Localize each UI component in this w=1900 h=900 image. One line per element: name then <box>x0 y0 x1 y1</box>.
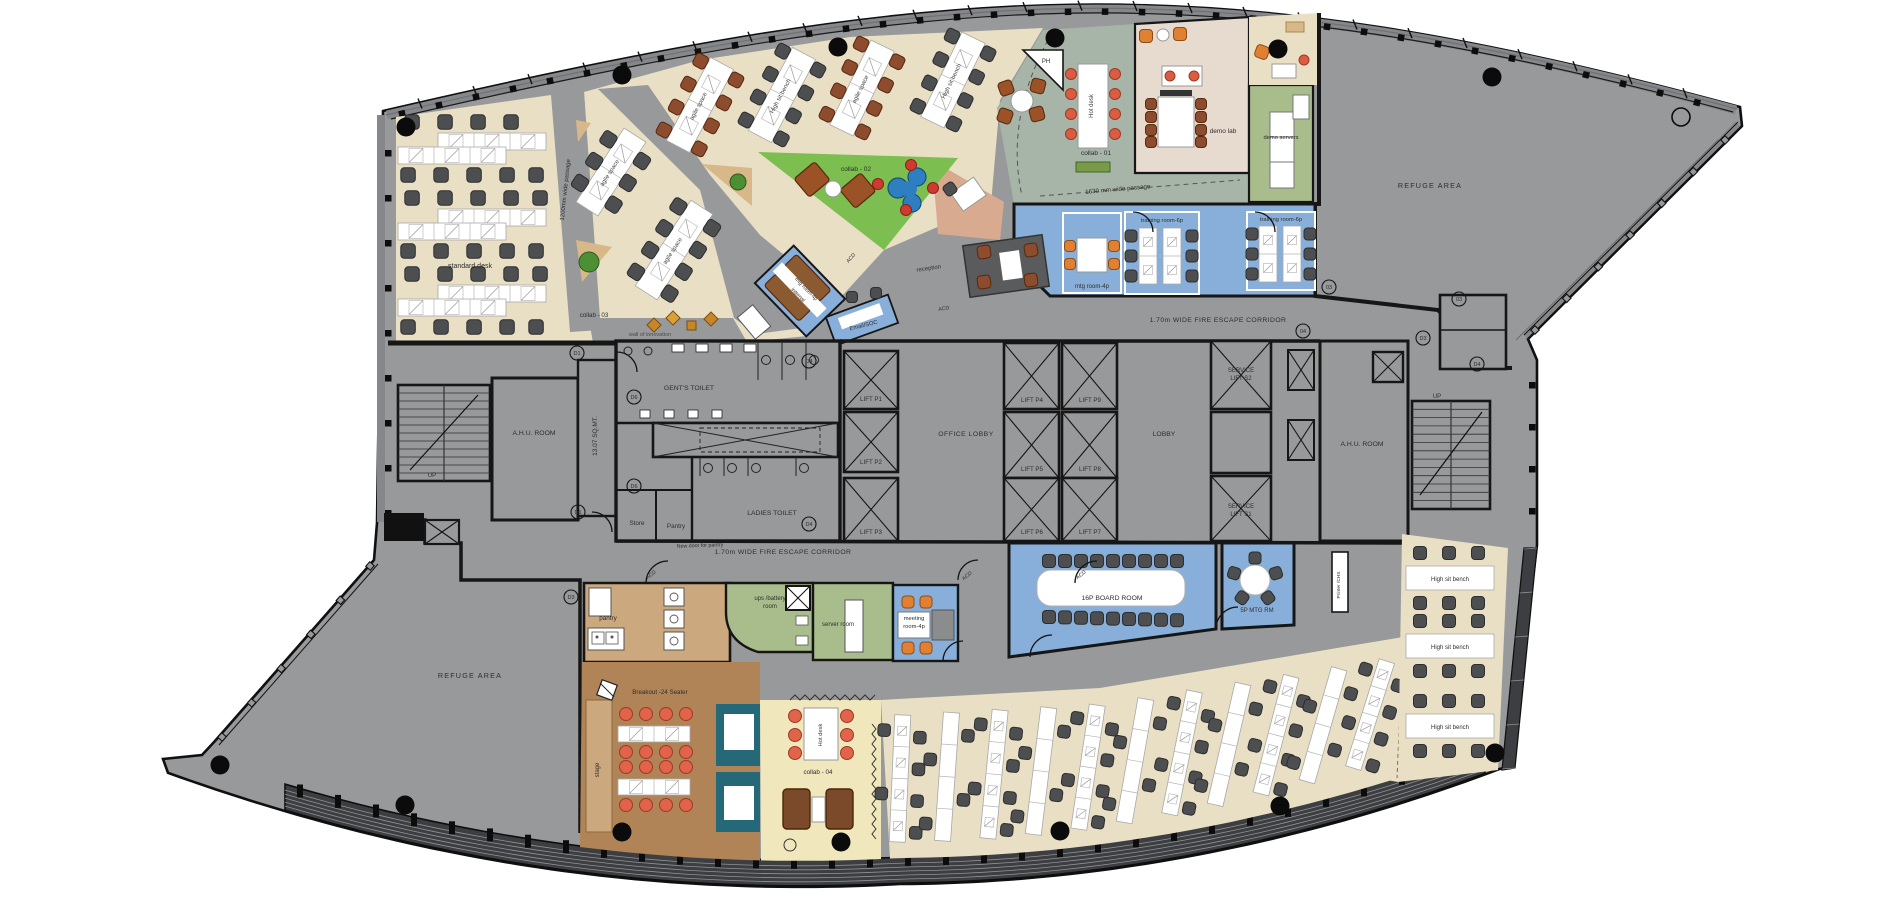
svg-text:mtg room-4p: mtg room-4p <box>1075 284 1110 290</box>
svg-text:OFFICE LOBBY: OFFICE LOBBY <box>938 431 993 438</box>
svg-text:5P MTG RM: 5P MTG RM <box>1240 608 1273 614</box>
svg-text:LIFT P4: LIFT P4 <box>1021 397 1043 404</box>
svg-text:SERVICE: SERVICE <box>1228 504 1254 510</box>
svg-text:LIFT P8: LIFT P8 <box>1079 466 1101 473</box>
svg-text:LIFT S2: LIFT S2 <box>1230 376 1252 382</box>
svg-text:LIFT P7: LIFT P7 <box>1079 529 1101 536</box>
svg-text:wall of innovation: wall of innovation <box>628 332 671 338</box>
svg-text:High sit bench: High sit bench <box>1431 577 1469 583</box>
svg-text:standard desk: standard desk <box>448 263 492 270</box>
svg-text:REFUGE AREA: REFUGE AREA <box>1398 181 1462 190</box>
svg-text:03: 03 <box>1326 285 1332 291</box>
svg-text:demo servers: demo servers <box>1263 135 1298 141</box>
svg-text:collab - 02: collab - 02 <box>841 166 871 173</box>
svg-text:LIFT S1: LIFT S1 <box>1230 512 1252 518</box>
svg-text:Store: Store <box>629 520 645 527</box>
svg-text:meeting: meeting <box>904 616 925 622</box>
svg-text:GENT'S TOILET: GENT'S TOILET <box>664 385 714 392</box>
svg-text:16P BOARD ROOM: 16P BOARD ROOM <box>1081 595 1142 602</box>
svg-text:Breakout -24 Seater: Breakout -24 Seater <box>632 689 687 696</box>
svg-text:1.70m WIDE FIRE ESCAPE COR: 1.70m WIDE FIRE ESCAPE CORRIDOR <box>1150 317 1287 324</box>
svg-text:D1: D1 <box>574 510 581 516</box>
svg-text:training room-6p: training room-6p <box>1260 217 1302 223</box>
svg-text:High sit bench: High sit bench <box>1431 645 1469 651</box>
svg-text:1.70m WIDE FIRE ESCAPE COR: 1.70m WIDE FIRE ESCAPE CORRIDOR <box>715 549 852 556</box>
svg-text:collab - 04: collab - 04 <box>803 769 833 776</box>
svg-text:13.07 SQ.MT.: 13.07 SQ.MT. <box>592 416 599 456</box>
svg-text:collab - 03: collab - 03 <box>580 312 609 319</box>
svg-text:REFUGE AREA: REFUGE AREA <box>438 671 502 680</box>
svg-text:A.H.U. ROOM: A.H.U. ROOM <box>1340 441 1383 448</box>
svg-text:room: room <box>763 604 777 610</box>
svg-text:LIFT P9: LIFT P9 <box>1079 397 1101 404</box>
svg-text:04: 04 <box>1300 329 1306 335</box>
svg-text:Pantry: Pantry <box>667 523 686 530</box>
svg-text:LIFT P2: LIFT P2 <box>860 459 882 466</box>
svg-text:03: 03 <box>1456 297 1462 303</box>
svg-text:Printer /CHS: Printer /CHS <box>1336 572 1342 599</box>
svg-text:room-4p: room-4p <box>903 624 925 630</box>
svg-text:D6: D6 <box>630 484 637 490</box>
svg-text:D6: D6 <box>630 395 637 401</box>
svg-text:LIFT P1: LIFT P1 <box>860 396 882 403</box>
svg-text:A.H.U. ROOM: A.H.U. ROOM <box>512 430 555 437</box>
svg-text:ups /battery: ups /battery <box>754 596 785 602</box>
svg-text:demo lab: demo lab <box>1210 128 1237 135</box>
svg-text:High sit bench: High sit bench <box>1431 725 1469 731</box>
svg-text:UP: UP <box>428 473 436 479</box>
svg-text:LADIES TOILET: LADIES TOILET <box>747 510 797 517</box>
svg-text:D3: D3 <box>567 595 574 601</box>
svg-text:LOBBY: LOBBY <box>1153 431 1176 438</box>
svg-text:server room: server room <box>822 622 854 628</box>
svg-text:Hot desk: Hot desk <box>818 723 824 746</box>
svg-text:D4: D4 <box>805 522 812 528</box>
svg-text:D1: D1 <box>573 351 580 357</box>
svg-text:LIFT P3: LIFT P3 <box>860 529 882 536</box>
svg-text:pantry: pantry <box>599 615 617 622</box>
svg-text:PH: PH <box>1042 59 1050 65</box>
svg-text:LIFT P6: LIFT P6 <box>1021 529 1043 536</box>
svg-text:D4: D4 <box>1473 362 1480 368</box>
svg-text:collab - 01: collab - 01 <box>1081 150 1111 157</box>
svg-text:LIFT P5: LIFT P5 <box>1021 466 1043 473</box>
svg-text:SERVICE: SERVICE <box>1228 368 1254 374</box>
svg-text:UP: UP <box>1433 394 1441 400</box>
svg-text:D4: D4 <box>805 359 812 365</box>
svg-text:D3: D3 <box>1419 336 1426 342</box>
svg-text:stage: stage <box>595 762 601 777</box>
svg-text:Hot desk: Hot desk <box>1089 93 1095 118</box>
svg-text:training room-6p: training room-6p <box>1141 218 1183 224</box>
